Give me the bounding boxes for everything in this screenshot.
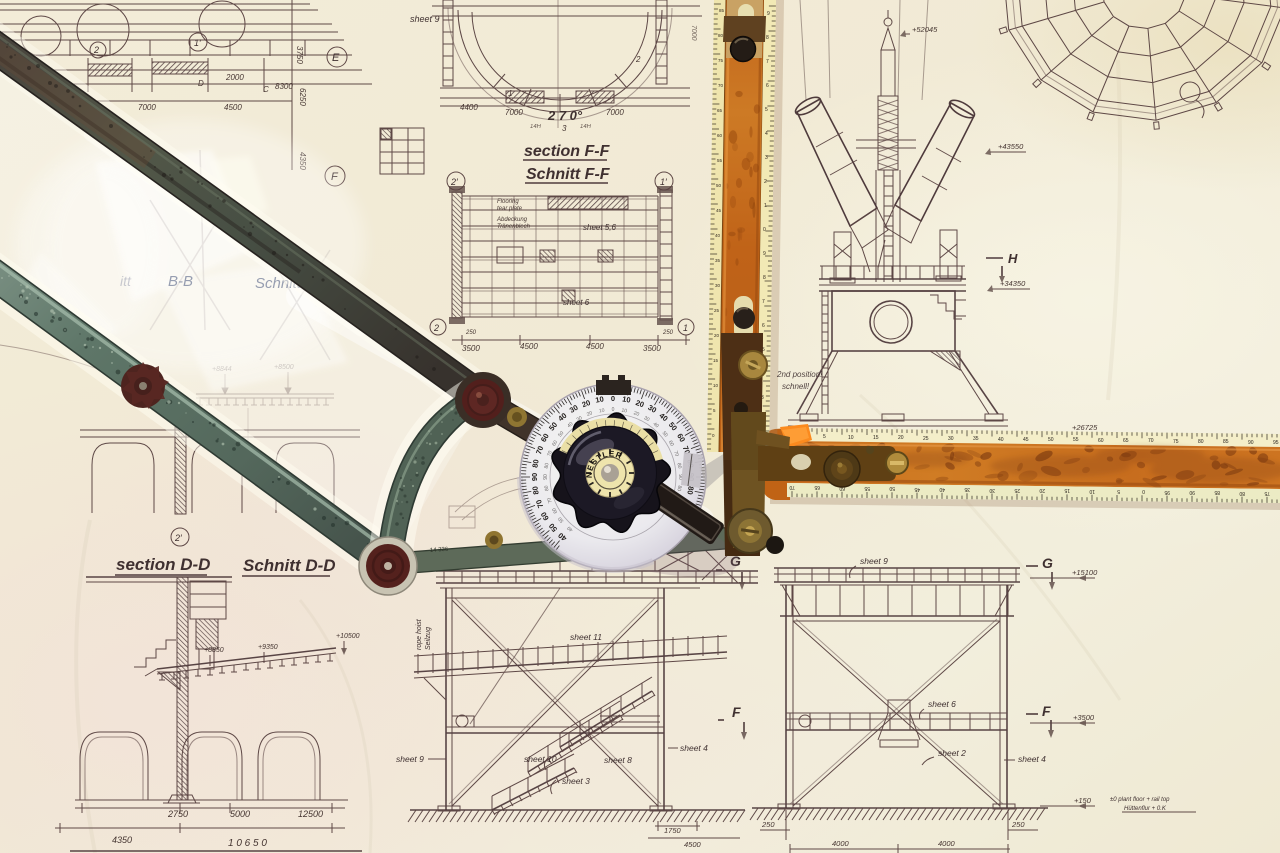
svg-text:+9350: +9350 [258, 644, 278, 651]
svg-text:sheet 2: sheet 2 [938, 748, 966, 758]
svg-text:2: 2 [635, 55, 641, 64]
svg-text:4500: 4500 [586, 342, 604, 351]
svg-text:70: 70 [789, 484, 795, 490]
svg-text:sheet 5,6: sheet 5,6 [583, 223, 616, 232]
svg-text:0: 0 [763, 227, 766, 233]
svg-text:sheet 9: sheet 9 [410, 14, 440, 24]
svg-text:65: 65 [814, 484, 820, 490]
svg-text:3: 3 [562, 124, 567, 133]
svg-text:Seilzug: Seilzug [425, 627, 432, 650]
svg-text:6250: 6250 [298, 88, 307, 106]
svg-text:2: 2 [433, 323, 439, 333]
svg-text:90: 90 [543, 474, 549, 480]
svg-text:1: 1 [764, 203, 767, 209]
svg-text:50: 50 [716, 183, 722, 188]
svg-text:10: 10 [595, 394, 605, 404]
svg-text:5: 5 [823, 434, 826, 440]
svg-text:Abdeckung: Abdeckung [496, 217, 528, 223]
svg-text:+150: +150 [1074, 796, 1092, 805]
svg-text:5: 5 [1117, 488, 1120, 494]
svg-text:H: H [1008, 251, 1018, 266]
svg-text:85: 85 [719, 8, 725, 13]
svg-text:75: 75 [718, 58, 724, 63]
svg-text:3: 3 [765, 155, 768, 161]
svg-text:4500: 4500 [684, 840, 702, 849]
svg-text:Schnitt F-F: Schnitt F-F [526, 166, 611, 183]
svg-text:sheet 3: sheet 3 [562, 776, 590, 786]
svg-text:1′: 1′ [660, 177, 667, 187]
svg-text:±0 plant floor + rail top: ±0 plant floor + rail top [1110, 797, 1170, 803]
svg-text:55: 55 [717, 158, 723, 163]
svg-text:65: 65 [717, 108, 723, 113]
svg-text:45: 45 [716, 208, 722, 213]
svg-text:95: 95 [1164, 489, 1170, 495]
svg-text:15: 15 [1064, 487, 1070, 493]
svg-text:10: 10 [713, 383, 719, 388]
svg-text:25: 25 [714, 308, 720, 313]
svg-text:20: 20 [714, 333, 720, 338]
svg-text:7: 7 [762, 299, 765, 305]
svg-text:60: 60 [1098, 438, 1104, 444]
svg-text:75: 75 [1264, 490, 1270, 496]
svg-text:itt: itt [120, 273, 132, 289]
svg-text:3750: 3750 [295, 46, 304, 64]
svg-text:55: 55 [864, 485, 870, 491]
svg-text:12500: 12500 [298, 809, 323, 819]
svg-text:50: 50 [1048, 437, 1054, 443]
svg-text:sheet 10: sheet 10 [524, 754, 557, 764]
svg-text:tear plate: tear plate [497, 206, 523, 212]
svg-text:schnell!: schnell! [782, 382, 810, 391]
svg-text:5000: 5000 [230, 809, 250, 819]
svg-text:90: 90 [530, 473, 539, 481]
svg-text:50: 50 [889, 485, 895, 491]
svg-text:40: 40 [715, 233, 721, 238]
svg-text:+10500: +10500 [336, 633, 360, 640]
svg-text:sheet 9: sheet 9 [396, 754, 424, 764]
svg-text:rope hoist: rope hoist [416, 618, 423, 650]
svg-text:70: 70 [718, 83, 724, 88]
svg-text:8300: 8300 [275, 82, 293, 91]
svg-text:20: 20 [1039, 487, 1045, 493]
svg-text:4500: 4500 [520, 342, 538, 351]
svg-text:4500: 4500 [224, 103, 242, 112]
svg-text:4400: 4400 [460, 103, 478, 112]
svg-text:+52045: +52045 [912, 25, 938, 34]
svg-text:80: 80 [530, 459, 540, 469]
svg-text:85: 85 [1223, 439, 1229, 445]
svg-text:B-B: B-B [168, 273, 193, 290]
svg-text:15: 15 [873, 435, 879, 441]
svg-text:4000: 4000 [938, 839, 956, 848]
svg-text:3500: 3500 [462, 344, 480, 353]
svg-text:10: 10 [1089, 488, 1095, 494]
svg-text:15: 15 [713, 358, 719, 363]
svg-text:8: 8 [766, 35, 769, 41]
svg-text:1′: 1′ [194, 38, 201, 48]
svg-text:Flooring: Flooring [497, 199, 519, 205]
svg-text:+34350: +34350 [1000, 279, 1026, 288]
svg-text:3500: 3500 [643, 344, 661, 353]
svg-text:45: 45 [914, 486, 920, 492]
svg-text:sheet 4: sheet 4 [680, 743, 708, 753]
svg-text:250: 250 [662, 330, 674, 336]
svg-text:40: 40 [939, 486, 945, 492]
svg-text:14H: 14H [580, 124, 592, 130]
svg-text:2: 2 [93, 45, 99, 55]
svg-text:7: 7 [766, 59, 769, 65]
svg-text:sheet 8: sheet 8 [604, 755, 632, 765]
svg-text:8: 8 [763, 275, 766, 281]
svg-text:section D-D: section D-D [116, 555, 210, 574]
svg-text:90: 90 [1189, 489, 1195, 495]
svg-text:9: 9 [767, 11, 770, 17]
svg-text:0: 0 [1142, 488, 1145, 494]
svg-text:80: 80 [530, 486, 540, 496]
svg-text:65: 65 [1123, 438, 1129, 444]
svg-text:7000: 7000 [690, 25, 697, 41]
svg-text:1750: 1750 [664, 826, 682, 835]
svg-text:E: E [332, 52, 340, 64]
svg-text:Hüttenflur + 0.K: Hüttenflur + 0.K [1124, 806, 1167, 812]
svg-text:F: F [1042, 703, 1051, 719]
svg-text:4: 4 [765, 131, 768, 137]
svg-text:6: 6 [766, 83, 769, 89]
svg-text:90: 90 [1248, 440, 1254, 446]
svg-text:sheet 6: sheet 6 [563, 298, 590, 307]
svg-text:sheet 11: sheet 11 [570, 632, 602, 642]
svg-text:35: 35 [973, 436, 979, 442]
svg-text:95: 95 [1273, 440, 1279, 446]
svg-text:75: 75 [1173, 439, 1179, 445]
svg-text:0: 0 [611, 394, 615, 403]
svg-text:7000: 7000 [505, 108, 523, 117]
svg-text:9: 9 [763, 251, 766, 257]
svg-text:80: 80 [1198, 439, 1204, 445]
svg-text:1: 1 [683, 323, 688, 333]
svg-text:30: 30 [948, 436, 954, 442]
svg-text:250: 250 [465, 330, 477, 336]
svg-text:2: 2 [764, 179, 767, 185]
svg-text:10: 10 [622, 394, 632, 404]
svg-text:Schnitt D-D: Schnitt D-D [243, 556, 336, 575]
svg-text:40: 40 [998, 437, 1004, 443]
svg-text:5: 5 [765, 107, 768, 113]
svg-text:85: 85 [1214, 489, 1220, 495]
svg-text:35: 35 [715, 258, 721, 263]
svg-text:35: 35 [964, 486, 970, 492]
svg-text:55: 55 [1073, 437, 1079, 443]
svg-text:2′: 2′ [450, 177, 458, 187]
svg-text:2000: 2000 [225, 73, 244, 82]
svg-text:4000: 4000 [832, 839, 850, 848]
svg-text:25: 25 [923, 436, 929, 442]
svg-text:0: 0 [612, 407, 615, 413]
svg-text:7000: 7000 [138, 103, 156, 112]
svg-text:D: D [198, 79, 204, 88]
svg-text:25: 25 [1014, 487, 1020, 493]
svg-text:30: 30 [989, 487, 995, 493]
svg-text:1 0 6 5 0: 1 0 6 5 0 [228, 838, 267, 849]
svg-text:+8850: +8850 [204, 647, 224, 654]
svg-text:2nd position!: 2nd position! [776, 370, 823, 379]
svg-text:G: G [1042, 555, 1053, 571]
svg-text:C: C [263, 85, 269, 94]
svg-text:F: F [732, 704, 741, 720]
svg-text:250: 250 [761, 820, 775, 829]
svg-text:20: 20 [898, 435, 904, 441]
svg-text:1: 1 [508, 89, 512, 98]
svg-text:6: 6 [762, 323, 765, 329]
svg-text:70: 70 [1148, 438, 1154, 444]
svg-text:4350: 4350 [112, 835, 132, 845]
svg-text:80: 80 [718, 33, 724, 38]
svg-text:2 7 0°: 2 7 0° [547, 108, 583, 123]
svg-text:30: 30 [715, 283, 721, 288]
svg-text:sheet 9: sheet 9 [860, 556, 888, 566]
svg-text:sheet 6: sheet 6 [928, 699, 956, 709]
svg-text:+26725: +26725 [1072, 423, 1098, 432]
svg-text:7000: 7000 [606, 108, 624, 117]
svg-text:+3500: +3500 [1073, 713, 1095, 722]
svg-text:section F-F: section F-F [524, 143, 611, 160]
svg-text:80: 80 [1239, 490, 1245, 496]
svg-text:14H: 14H [530, 124, 542, 130]
svg-text:Tränenblech: Tränenblech [497, 224, 531, 230]
svg-text:sheet 4: sheet 4 [1018, 754, 1046, 764]
svg-text:45: 45 [1023, 437, 1029, 443]
svg-text:2′: 2′ [174, 533, 182, 543]
svg-text:250: 250 [1011, 820, 1025, 829]
svg-text:2750: 2750 [167, 809, 188, 819]
svg-text:+43550: +43550 [998, 142, 1024, 151]
svg-text:60: 60 [717, 133, 723, 138]
svg-text:10: 10 [848, 435, 854, 441]
